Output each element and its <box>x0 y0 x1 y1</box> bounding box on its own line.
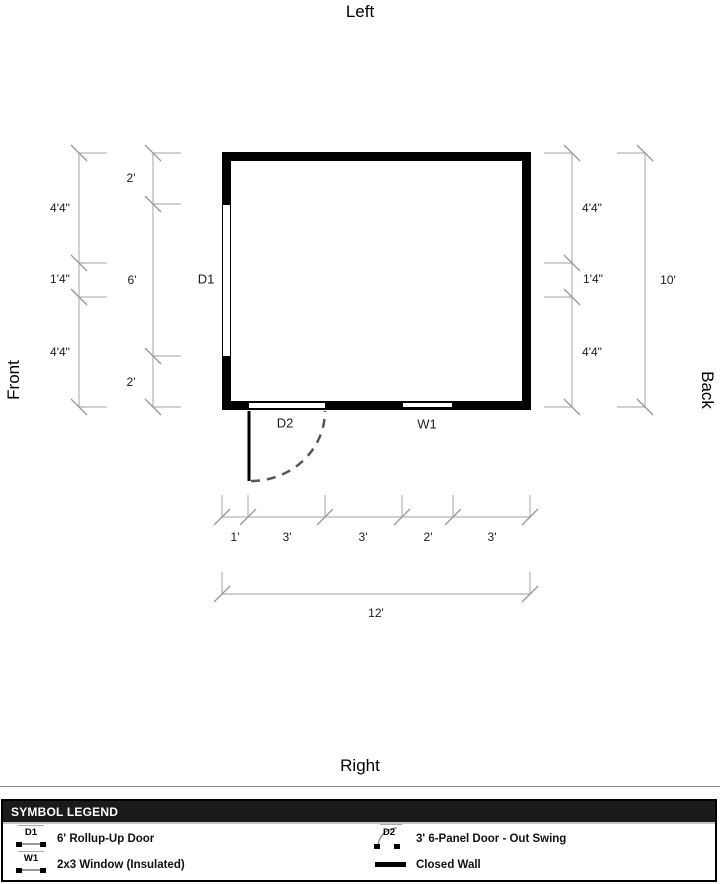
d1-door-symbol-icon: D1 <box>16 825 46 849</box>
window-w1[interactable] <box>402 402 453 408</box>
legend-body: D1 6' Rollup-Up Door W1 2x3 Window (Insu… <box>3 824 715 880</box>
legend-item-wall-label: Closed Wall <box>416 859 481 871</box>
legend-title: SYMBOL LEGEND <box>3 805 118 819</box>
door-d1[interactable] <box>222 204 231 357</box>
d2-swing-door-symbol-icon: D2 <box>374 824 404 849</box>
orientation-label-bottom: Right <box>340 756 380 776</box>
dimension-lines <box>0 0 720 884</box>
closed-wall-symbol-icon <box>375 862 406 867</box>
window-w1-label: W1 <box>417 417 437 432</box>
dim-right-inner-1: 4'4" <box>582 201 602 215</box>
dim-bottom-2: 3' <box>283 530 292 544</box>
door-d2-label: D2 <box>277 416 294 431</box>
building-outline <box>222 152 531 410</box>
dim-left-inner-3: 2' <box>127 375 136 389</box>
orientation-label-right: Back <box>697 371 717 409</box>
orientation-label-top: Left <box>346 2 374 22</box>
dim-bottom-total: 12' <box>368 606 384 620</box>
dim-left-outer-3: 4'4" <box>50 345 70 359</box>
dim-left-outer-2: 1'4" <box>50 272 70 286</box>
dim-bottom-4: 2' <box>424 530 433 544</box>
dim-right-total: 10' <box>660 273 676 287</box>
legend-item-w1-label: 2x3 Window (Insulated) <box>57 859 185 871</box>
legend-header: SYMBOL LEGEND <box>3 801 715 824</box>
dim-left-outer-1: 4'4" <box>50 201 70 215</box>
w1-symbol-code: W1 <box>16 853 46 864</box>
dim-left-inner-2: 6' <box>128 273 137 287</box>
dim-right-inner-2: 1'4" <box>583 272 603 286</box>
d1-symbol-code: D1 <box>16 827 46 838</box>
legend-separator-line <box>0 786 720 787</box>
w1-window-symbol-icon: W1 <box>16 851 46 875</box>
door-d1-label: D1 <box>198 272 215 287</box>
dim-bottom-3: 3' <box>359 530 368 544</box>
d2-symbol-code: D2 <box>383 827 395 838</box>
dim-right-inner-3: 4'4" <box>582 345 602 359</box>
legend-item-d1-label: 6' Rollup-Up Door <box>57 833 154 845</box>
dim-left-inner-1: 2' <box>127 171 136 185</box>
legend-item-d2-label: 3' 6-Panel Door - Out Swing <box>416 833 566 845</box>
orientation-label-left: Front <box>4 360 24 400</box>
door-d2[interactable] <box>248 402 326 409</box>
symbol-legend: SYMBOL LEGEND D1 6' Rollup-Up Door W1 2x… <box>1 799 717 882</box>
dim-bottom-1: 1' <box>231 530 240 544</box>
dim-bottom-5: 3' <box>488 530 497 544</box>
